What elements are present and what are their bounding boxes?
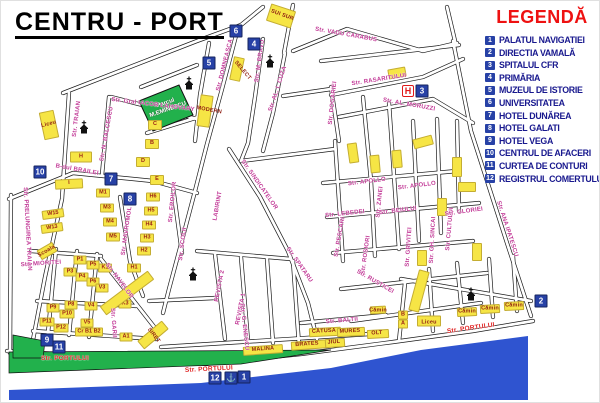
street-label: Cămin [369, 308, 387, 314]
building: H3 [140, 234, 154, 243]
legend-item: 11 CURTEA DE CONTURI [485, 160, 599, 172]
building: H2 [137, 247, 151, 256]
legend-items: 1 PALATUL NAVIGATIEI 2 DIRECTIA VAMALĂ 3… [485, 34, 599, 185]
building: A1 [120, 333, 133, 342]
street-label: Cămin [505, 303, 523, 309]
building: C [148, 120, 162, 130]
map-page: CENTRU - PORT Parcul M.EMINESCU HICBDEM1… [0, 0, 600, 403]
legend-item: 1 PALATUL NAVIGATIEI [485, 34, 599, 46]
church-icon [264, 55, 276, 68]
legend-item-number: 5 [485, 86, 495, 95]
map-marker: 4 [248, 38, 261, 51]
street-label: Cămin [458, 309, 476, 315]
legend-item-label: PALATUL NAVIGATIEI [499, 35, 585, 45]
building: P9 [47, 304, 60, 313]
building [458, 182, 476, 192]
legend-item-label: HOTEL VEGA [499, 136, 553, 146]
map-marker: 12 [209, 372, 222, 385]
legend-item: 4 PRIMĂRIA [485, 72, 599, 84]
anchor-icon: ⚓ [225, 372, 238, 385]
legend-item-number: 4 [485, 73, 495, 82]
map-marker: 5 [203, 57, 216, 70]
legend-item: 2 DIRECTIA VAMALĂ [485, 47, 599, 59]
legend-item-label: SPITALUL CFR [499, 60, 558, 70]
legend-item-number: 12 [485, 174, 495, 183]
church-icon [187, 268, 199, 281]
building: E [150, 175, 164, 185]
street-label: Cămin [481, 306, 499, 312]
legend-item-label: HOTEL DUNĂREA [499, 111, 571, 121]
building: V5 [81, 319, 94, 328]
legend-item-number: 11 [485, 161, 495, 170]
building: P1 [74, 256, 87, 265]
building: V4 [85, 302, 98, 311]
legend-item-label: CURTEA DE CONTURI [499, 161, 587, 171]
page-title: CENTRU - PORT [15, 9, 224, 39]
street-label: Liceu [421, 320, 436, 326]
building: H4 [142, 221, 156, 230]
legend-item: 6 UNIVERSITATEA [485, 97, 599, 109]
legend: LEGENDĂ 1 PALATUL NAVIGATIEI 2 DIRECTIA … [485, 7, 599, 185]
map-marker: 8 [124, 193, 137, 206]
map-marker: 1 [238, 371, 251, 384]
street-label: OLT [371, 331, 382, 337]
building [472, 243, 482, 261]
street-label: MURES [339, 329, 360, 336]
building: Cr B1 B2 [75, 328, 103, 337]
map-marker: 11 [53, 341, 66, 354]
building: H1 [127, 264, 141, 273]
building: P10 [60, 310, 75, 319]
legend-item-label: UNIVERSITATEA [499, 98, 565, 108]
legend-item: 9 HOTEL VEGA [485, 135, 599, 147]
building: A [398, 320, 408, 329]
legend-item-number: 3 [485, 61, 495, 70]
legend-item-number: 7 [485, 111, 495, 120]
street-label: JIUL [327, 340, 340, 346]
street-label: Str. PORTULUI [41, 356, 89, 363]
building: H6 [146, 193, 160, 202]
building: P5 [87, 261, 100, 270]
map-marker: 2 [535, 295, 548, 308]
building: M4 [103, 218, 117, 227]
legend-item: 3 SPITALUL CFR [485, 59, 599, 71]
building: H5 [144, 207, 158, 216]
building: M1 [96, 189, 110, 198]
legend-item-label: HOTEL GALATI [499, 123, 560, 133]
legend-item-label: MUZEUL DE ISTORIE [499, 85, 583, 95]
building: H [70, 152, 92, 163]
building: M3 [100, 204, 114, 213]
building: M5 [106, 233, 120, 242]
church-icon [465, 288, 477, 301]
building [391, 150, 403, 169]
legend-item-number: 6 [485, 98, 495, 107]
legend-item: 10 CENTRUL DE AFACERI [485, 147, 599, 159]
legend-item-number: 10 [485, 149, 495, 158]
map-marker: 7 [105, 173, 118, 186]
building: V3 [96, 284, 109, 293]
building: P11 [40, 318, 55, 327]
legend-item: 7 HOTEL DUNĂREA [485, 110, 599, 122]
building: D [136, 157, 150, 167]
legend-item-label: PRIMĂRIA [499, 73, 540, 83]
church-icon [78, 121, 90, 134]
legend-item-label: DIRECTIA VAMALĂ [499, 48, 575, 58]
legend-title: LEGENDĂ [485, 7, 599, 28]
building: P12 [54, 324, 69, 333]
legend-item-number: 1 [485, 36, 495, 45]
map-marker: 3 [416, 85, 429, 98]
map-marker: 6 [230, 25, 243, 38]
legend-item: 5 MUZEUL DE ISTORIE [485, 84, 599, 96]
building: P8 [65, 301, 78, 310]
building: B [398, 311, 408, 320]
map-marker: 10 [34, 166, 47, 179]
legend-item-label: CENTRUL DE AFACERI [499, 148, 591, 158]
legend-item-number: 9 [485, 136, 495, 145]
legend-item: 8 HOTEL GALATI [485, 122, 599, 134]
legend-item-label: REGISTRUL COMERTULUI [499, 174, 600, 184]
hospital-marker: H [402, 85, 414, 97]
building [369, 155, 381, 174]
church-icon [183, 77, 195, 90]
legend-item-number: 2 [485, 48, 495, 57]
building: I [55, 178, 83, 189]
building: B [145, 139, 159, 149]
building [452, 157, 462, 177]
building [417, 250, 427, 266]
legend-item: 12 REGISTRUL COMERTULUI [485, 173, 599, 185]
legend-item-number: 8 [485, 124, 495, 133]
